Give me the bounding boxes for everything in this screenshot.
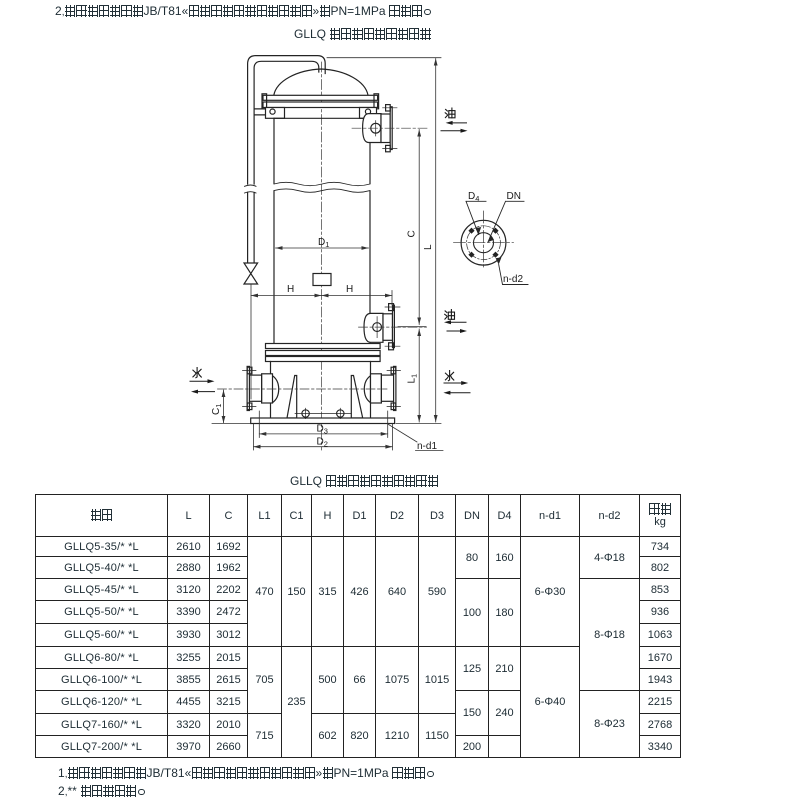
svg-text:DN: DN xyxy=(507,191,521,202)
svg-text:n-d1: n-d1 xyxy=(417,441,437,452)
svg-text:L1: L1 xyxy=(407,374,419,384)
svg-text:C: C xyxy=(407,230,418,237)
svg-text:C1: C1 xyxy=(211,404,223,415)
svg-text:D4: D4 xyxy=(468,191,479,203)
svg-text:D2: D2 xyxy=(317,437,328,449)
svg-text:H: H xyxy=(346,284,353,295)
svg-text:D1: D1 xyxy=(318,237,329,249)
svg-text:H: H xyxy=(287,284,294,295)
svg-text:n-d2: n-d2 xyxy=(503,274,523,285)
svg-text:L: L xyxy=(423,244,434,250)
svg-text:D3: D3 xyxy=(317,424,328,436)
